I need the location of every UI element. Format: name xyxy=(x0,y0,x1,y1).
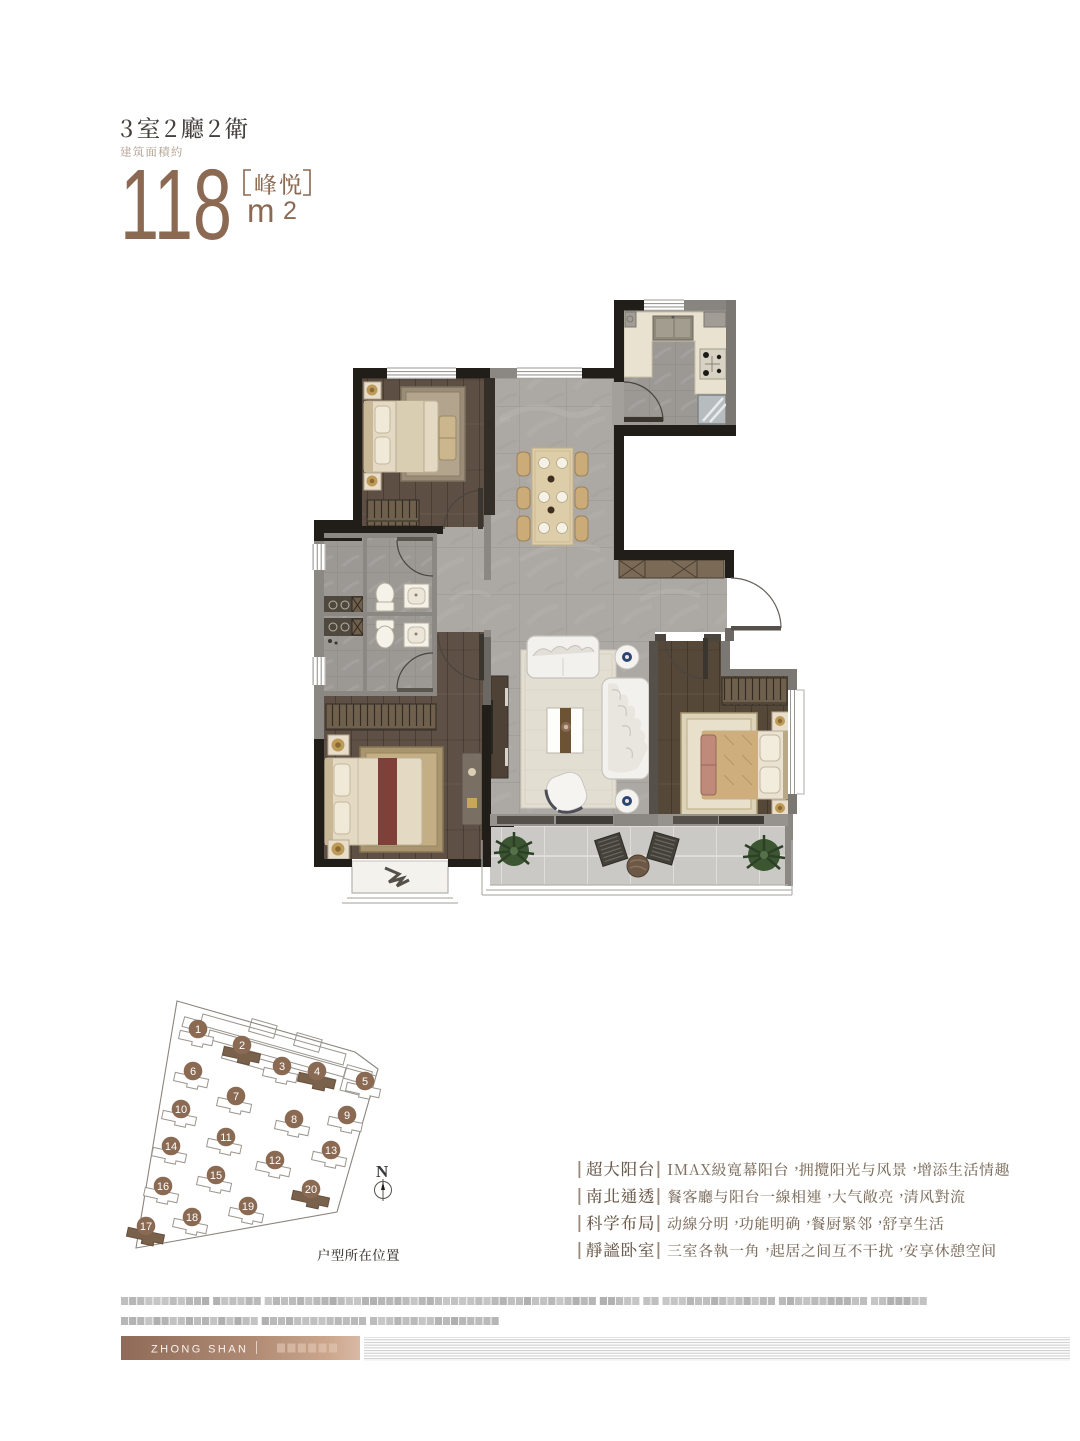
svg-text:6: 6 xyxy=(190,1066,196,1078)
svg-text:17: 17 xyxy=(140,1221,152,1233)
svg-text:9: 9 xyxy=(344,1110,350,1122)
svg-text:20: 20 xyxy=(305,1184,317,1196)
svg-text:8: 8 xyxy=(291,1114,297,1126)
svg-text:13: 13 xyxy=(325,1145,337,1157)
svg-text:15: 15 xyxy=(210,1170,222,1182)
svg-text:10: 10 xyxy=(175,1104,187,1116)
svg-text:N: N xyxy=(376,1162,389,1181)
svg-text:1: 1 xyxy=(195,1024,201,1036)
svg-text:ZHONG SHAN: ZHONG SHAN xyxy=(151,1344,248,1356)
svg-text:118: 118 xyxy=(120,149,232,261)
svg-text:4: 4 xyxy=(314,1066,320,1078)
svg-text:2: 2 xyxy=(283,197,297,225)
svg-text:12: 12 xyxy=(269,1155,281,1167)
svg-text:16: 16 xyxy=(157,1181,169,1193)
svg-text:7: 7 xyxy=(233,1091,239,1103)
svg-text:3: 3 xyxy=(279,1061,285,1073)
svg-text:14: 14 xyxy=(165,1141,177,1153)
svg-text:2: 2 xyxy=(239,1040,245,1052)
svg-text:5: 5 xyxy=(362,1076,368,1088)
svg-text:11: 11 xyxy=(220,1132,231,1144)
svg-text:m: m xyxy=(247,192,275,229)
svg-text:18: 18 xyxy=(186,1212,198,1224)
svg-text:19: 19 xyxy=(242,1201,254,1213)
